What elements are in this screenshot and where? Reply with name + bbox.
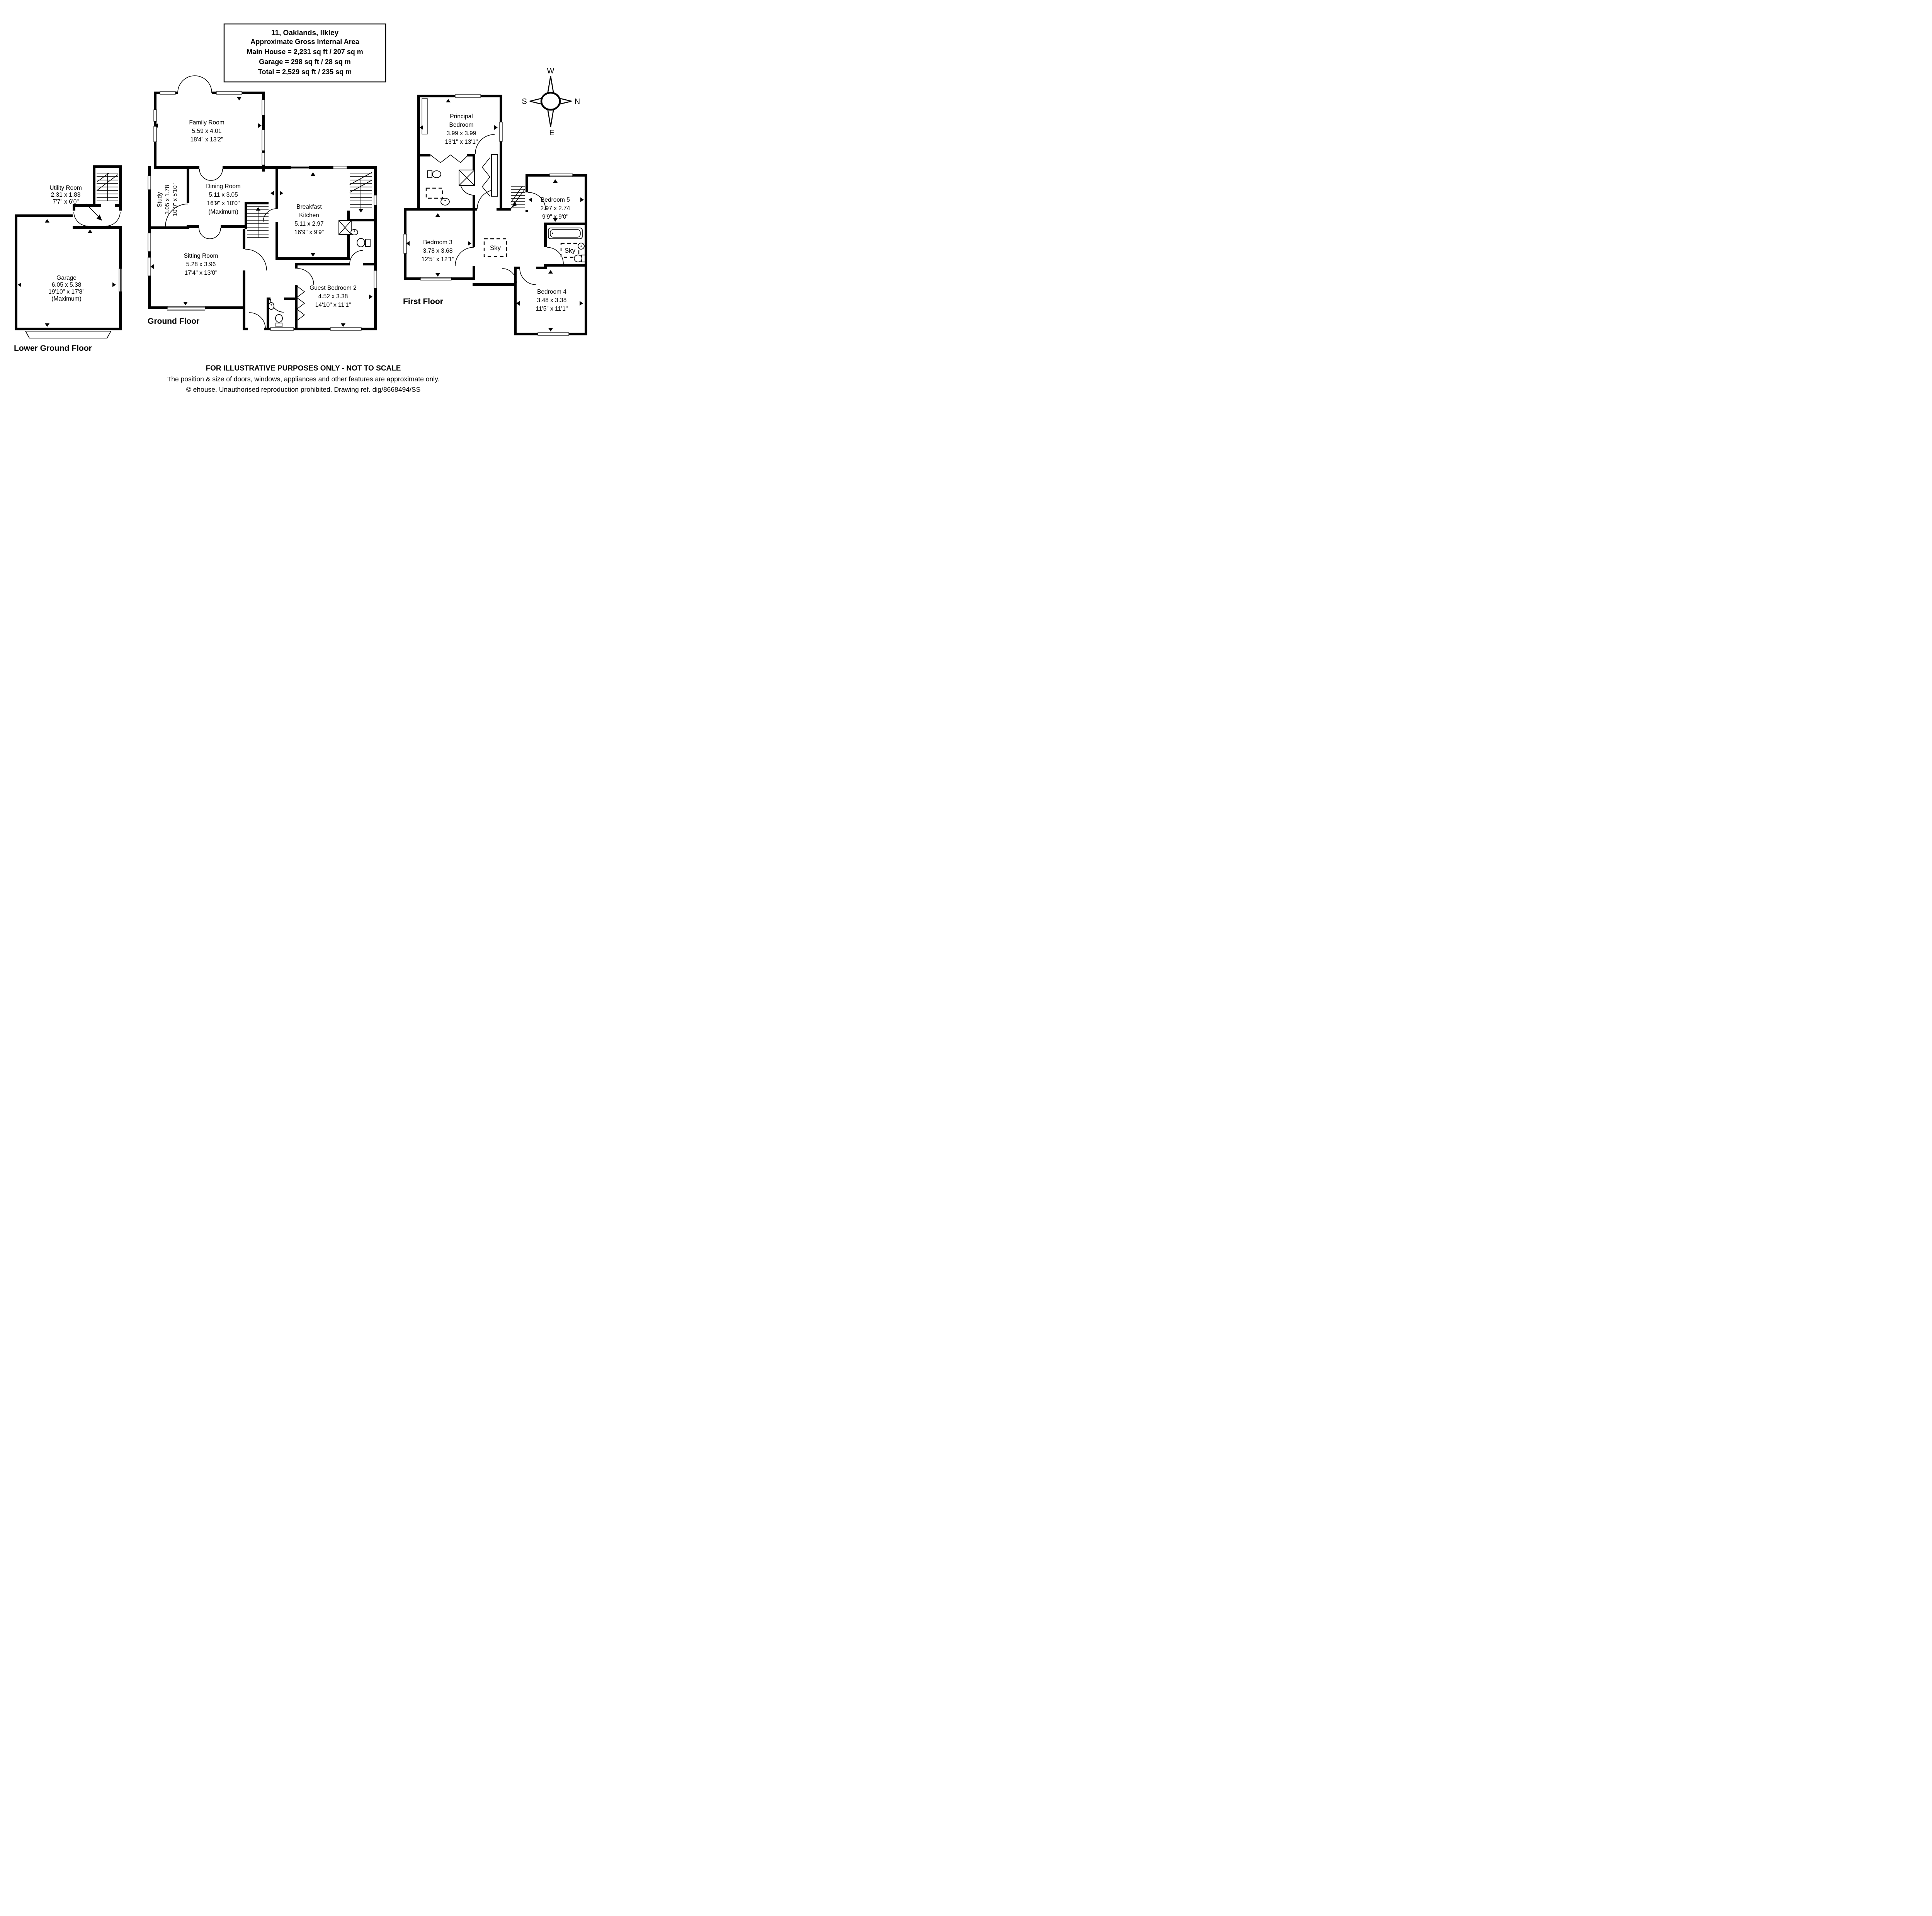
room-dims-ft-dining-room: 16'9" x 10'0": [207, 200, 240, 207]
window: [333, 166, 347, 169]
door-arc: [178, 76, 195, 93]
room-label-study: Study: [156, 192, 163, 207]
dimension-arrow: [420, 125, 423, 130]
title-box: 11, Oaklands, Ilkley Approximate Gross I…: [224, 24, 386, 82]
room-label2-breakfast-kitchen: Kitchen: [299, 212, 319, 219]
room-dims-ft-family-room: 18'4" x 13'2": [190, 136, 223, 143]
window: [500, 122, 502, 141]
window: [455, 95, 481, 97]
window: [291, 166, 309, 169]
lower-ground-floor-plan: Utility Room 2.31 x 1.83 7'7" x 6'0" Gar…: [14, 165, 122, 353]
room-dims-ft-breakfast-kitchen: 16'9" x 9'9": [294, 229, 324, 236]
room-dims-m-garage: 6.05 x 5.38: [52, 282, 82, 288]
room-dims-m-breakfast-kitchen: 5.11 x 2.97: [294, 221, 324, 227]
footer-disclaimer-title: FOR ILLUSTRATIVE PURPOSES ONLY - NOT TO …: [206, 364, 401, 372]
floorplan-page: 11, Oaklands, Ilkley Approximate Gross I…: [0, 0, 597, 422]
room-dims-ft-bedroom-4: 11'5" x 11'1": [536, 306, 568, 312]
door-arc: [74, 212, 88, 226]
window: [167, 306, 205, 310]
dimension-arrow: [270, 191, 274, 196]
door-opening: [199, 225, 221, 228]
compass-east-label: E: [549, 129, 554, 137]
door-opening: [477, 208, 497, 211]
dimension-arrow: [529, 197, 532, 202]
footer-disclaimer-detail: The position & size of doors, windows, a…: [167, 375, 440, 383]
dimension-arrow: [112, 282, 116, 287]
title-subtitle: Approximate Gross Internal Area: [250, 38, 359, 46]
door-arc: [298, 269, 314, 285]
toilet-icon: [427, 171, 441, 178]
room-note-dining-room: (Maximum): [208, 209, 238, 215]
first-floor-plan: Sky Sky: [403, 95, 587, 335]
title-total-area: Total = 2,529 sq ft / 235 sq m: [258, 68, 352, 76]
door-opening: [350, 263, 363, 265]
room-dims-m-dining-room: 5.11 x 3.05: [209, 192, 238, 198]
door-arc: [245, 249, 267, 270]
room-label-guest-bedroom-2: Guest Bedroom 2: [310, 285, 356, 291]
room-label-family-room: Family Room: [189, 119, 224, 126]
room-label-bedroom-4: Bedroom 4: [537, 289, 566, 295]
skylight-label: Sky: [565, 247, 576, 254]
room-dims-ft-utility-room: 7'7" x 6'0": [53, 199, 79, 205]
door-arc: [520, 268, 536, 285]
room-label-sitting-room: Sitting Room: [184, 253, 218, 259]
window: [160, 92, 175, 94]
floor-label-lower-ground: Lower Ground Floor: [14, 344, 92, 353]
window: [262, 100, 265, 115]
room-dims-ft-bedroom-3: 12'5" x 12'1": [421, 256, 454, 263]
dimension-arrow: [516, 301, 520, 306]
door-arc: [199, 169, 211, 180]
room-label-bedroom-5: Bedroom 5: [541, 197, 570, 203]
compass-north-label: N: [575, 97, 580, 106]
dimension-arrow: [435, 213, 440, 217]
window: [549, 174, 573, 177]
room-note-garage: (Maximum): [51, 296, 82, 302]
room-dims-m-utility-room: 2.31 x 1.83: [51, 192, 81, 198]
door-arc: [350, 250, 363, 264]
window: [262, 153, 265, 165]
room-dims-m-study: 3.05 x 1.78: [164, 185, 171, 215]
room-label2-principal-bedroom: Bedroom: [449, 122, 474, 128]
floor-label-first: First Floor: [403, 297, 443, 306]
skylight-label: Sky: [490, 244, 501, 252]
door-opening: [243, 249, 245, 270]
sink-icon: [351, 230, 358, 235]
window: [374, 270, 377, 288]
door-arc: [210, 228, 221, 239]
window: [330, 328, 361, 330]
title-address: 11, Oaklands, Ilkley: [271, 29, 339, 37]
skylight: Sky: [484, 239, 507, 257]
door-opening: [520, 267, 536, 269]
room-label-breakfast-kitchen: Breakfast: [296, 204, 322, 210]
dimension-arrow: [237, 97, 241, 100]
dimension-arrow: [183, 302, 188, 305]
room-dims-m-principal-bedroom: 3.99 x 3.99: [447, 130, 476, 137]
door-opening: [295, 269, 298, 285]
window: [148, 233, 151, 252]
room-dims-m-bedroom-4: 3.48 x 3.38: [537, 297, 567, 304]
cupboard-icon: [482, 155, 498, 196]
door-opening: [199, 166, 223, 169]
garage-door: [26, 331, 111, 338]
dimension-arrow: [45, 219, 49, 223]
toilet-icon: [357, 238, 370, 247]
ground-floor-plan: Family Room 5.59 x 4.01 18'4" x 13'2" St…: [148, 76, 377, 330]
room-dims-ft-bedroom-5: 9'9" x 9'0": [542, 214, 568, 220]
room-dims-ft-sitting-room: 17'4" x 13'0": [184, 270, 217, 276]
room-dims-m-sitting-room: 5.28 x 3.96: [186, 261, 216, 268]
footer: FOR ILLUSTRATIVE PURPOSES ONLY - NOT TO …: [167, 364, 440, 393]
dimension-arrow: [18, 282, 21, 287]
door-arc: [249, 313, 265, 329]
wardrobe-icon: [297, 286, 304, 321]
door-opening: [544, 247, 547, 264]
door-arc: [211, 169, 223, 180]
compass-circle: [541, 93, 560, 110]
staircase: [350, 172, 372, 213]
toilet-icon: [574, 255, 585, 262]
door-opening: [526, 192, 528, 210]
title-garage-area: Garage = 298 sq ft / 28 sq m: [259, 58, 351, 66]
door-opening: [178, 92, 212, 94]
door-arc: [199, 228, 210, 239]
dimension-arrow: [341, 323, 345, 327]
sink-icon: [269, 303, 274, 309]
cabinet-icon: [426, 188, 442, 198]
door-arc: [455, 247, 474, 266]
dimension-arrow: [45, 323, 49, 327]
staircase: [97, 173, 118, 201]
window: [538, 333, 569, 335]
door-opening: [473, 247, 475, 266]
dimension-arrow: [311, 253, 315, 257]
window: [148, 257, 151, 276]
window: [270, 328, 294, 330]
door-arc: [475, 134, 495, 154]
room-label-utility-room: Utility Room: [49, 185, 82, 191]
toilet-icon: [276, 315, 282, 327]
door-opening: [270, 298, 284, 300]
floorplan-drawing: 11, Oaklands, Ilkley Approximate Gross I…: [0, 0, 597, 422]
compass-south-label: S: [522, 97, 527, 106]
dimension-arrow: [580, 197, 584, 202]
dimension-arrow: [468, 241, 471, 246]
staircase: [511, 186, 525, 209]
room-label-garage: Garage: [56, 275, 77, 281]
door-opening: [248, 328, 264, 330]
title-main-house-area: Main House = 2,231 sq ft / 207 sq m: [247, 48, 363, 56]
compass-rose: W N E S: [522, 67, 580, 137]
door-arc: [195, 76, 212, 93]
window: [154, 126, 156, 142]
room-label-principal-bedroom: Principal: [450, 113, 473, 120]
room-dims-ft-principal-bedroom: 13'1" x 13'1": [445, 139, 478, 145]
shower-icon: [339, 221, 351, 235]
sink-icon: [441, 198, 449, 205]
dimension-arrow: [580, 301, 583, 306]
dimension-arrow: [258, 123, 262, 128]
dimension-arrow: [88, 230, 92, 233]
dimension-arrow: [548, 328, 553, 332]
dimension-arrow: [494, 125, 498, 130]
room-dims-ft-study: 10'0" x 5'10": [172, 183, 179, 216]
window: [216, 92, 242, 94]
door-arc: [106, 212, 120, 226]
floor-label-ground: Ground Floor: [148, 317, 199, 326]
window: [119, 269, 122, 292]
dimension-arrow: [311, 172, 315, 176]
dimension-arrow: [280, 191, 283, 196]
room-dims-m-family-room: 5.59 x 4.01: [192, 128, 222, 134]
window: [262, 130, 265, 151]
bathtub-icon: [548, 228, 582, 239]
room-dims-ft-guest-bedroom-2: 14'10" x 11'1": [315, 302, 351, 308]
sink-icon: [578, 243, 584, 249]
compass-west-label: W: [547, 67, 554, 75]
window: [154, 110, 156, 121]
dimension-arrow: [435, 273, 440, 277]
staircase: [247, 206, 269, 238]
dimension-arrow: [446, 99, 451, 102]
footer-copyright: © ehouse. Unauthorised reproduction proh…: [186, 386, 420, 393]
window: [148, 176, 151, 190]
room-dims-m-guest-bedroom-2: 4.52 x 3.38: [318, 293, 348, 300]
dimension-arrow: [369, 294, 372, 299]
dimension-arrow: [553, 179, 558, 183]
shower-icon: [459, 170, 474, 185]
room-dims-ft-garage: 19'10" x 17'8": [48, 289, 85, 295]
window: [374, 195, 377, 205]
room-label-bedroom-3: Bedroom 3: [423, 239, 452, 246]
window: [404, 234, 406, 253]
window: [420, 277, 451, 280]
room-dims-m-bedroom-3: 3.78 x 3.68: [423, 248, 453, 254]
wardrobe-icon: [430, 155, 468, 163]
room-label-dining-room: Dining Room: [206, 183, 241, 190]
room-dims-m-bedroom-5: 2.97 x 2.74: [541, 205, 570, 212]
dimension-arrow: [548, 270, 553, 274]
